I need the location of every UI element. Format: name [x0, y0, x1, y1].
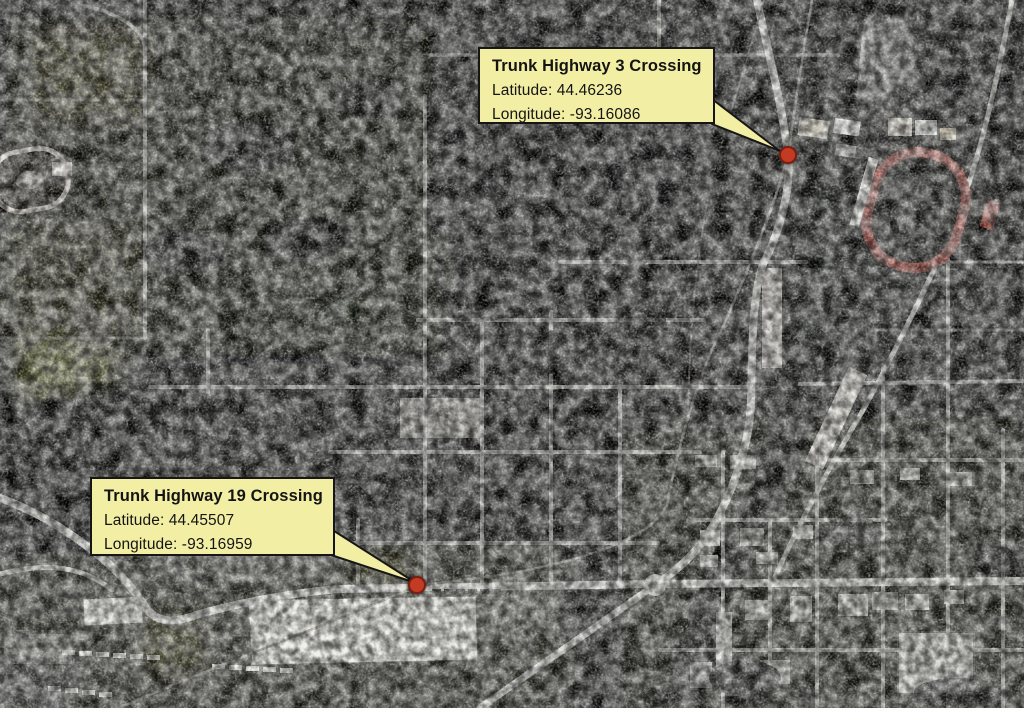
callout-latitude: Latitude: 44.46236: [492, 79, 703, 103]
callout-title: Trunk Highway 19 Crossing: [104, 484, 323, 509]
crossing-marker-highway-3-icon: [779, 146, 797, 164]
callout-longitude: Longitude: -93.16959: [104, 533, 323, 557]
callout-title: Trunk Highway 3 Crossing: [492, 54, 703, 79]
callout-highway-19-crossing: Trunk Highway 19 Crossing Latitude: 44.4…: [90, 477, 335, 556]
callout-longitude: Longitude: -93.16086: [492, 103, 703, 127]
crossing-marker-highway-19-icon: [408, 576, 426, 594]
callout-highway-3-crossing: Trunk Highway 3 Crossing Latitude: 44.46…: [478, 47, 715, 124]
callout-latitude: Latitude: 44.45507: [104, 509, 323, 533]
aerial-map-figure: Trunk Highway 3 Crossing Latitude: 44.46…: [0, 0, 1024, 708]
